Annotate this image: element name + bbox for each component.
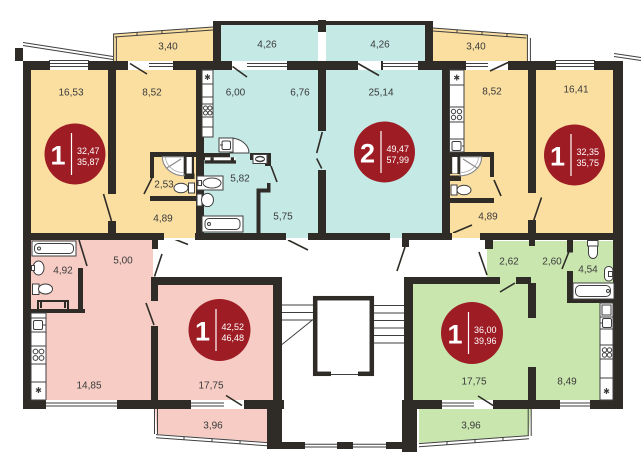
- svg-text:4,26: 4,26: [257, 40, 277, 51]
- svg-text:3,40: 3,40: [466, 42, 486, 53]
- svg-text:16,41: 16,41: [563, 85, 588, 96]
- svg-text:46,48: 46,48: [222, 333, 245, 343]
- svg-text:1: 1: [195, 317, 210, 347]
- svg-text:2,60: 2,60: [542, 257, 562, 268]
- svg-text:8,49: 8,49: [557, 377, 577, 388]
- svg-text:3,96: 3,96: [461, 421, 481, 432]
- svg-text:36,00: 36,00: [474, 325, 497, 335]
- svg-text:35,75: 35,75: [577, 158, 600, 168]
- svg-text:6,00: 6,00: [226, 88, 246, 99]
- svg-text:4,89: 4,89: [478, 212, 498, 223]
- svg-text:14,85: 14,85: [76, 381, 101, 392]
- svg-text:✱: ✱: [35, 386, 42, 395]
- svg-text:17,75: 17,75: [198, 381, 223, 392]
- svg-text:✱: ✱: [603, 387, 610, 396]
- svg-text:8,52: 8,52: [482, 87, 502, 98]
- svg-text:32,35: 32,35: [577, 147, 600, 157]
- svg-text:2,53: 2,53: [154, 180, 174, 191]
- svg-text:1: 1: [550, 142, 565, 172]
- svg-text:16,53: 16,53: [58, 88, 83, 99]
- svg-text:5,00: 5,00: [113, 256, 133, 267]
- svg-text:35,87: 35,87: [77, 157, 100, 167]
- svg-text:8,52: 8,52: [142, 88, 162, 99]
- svg-text:49,47: 49,47: [387, 144, 410, 154]
- svg-text:4,89: 4,89: [153, 214, 173, 225]
- svg-text:2,62: 2,62: [499, 257, 519, 268]
- svg-text:4,92: 4,92: [53, 266, 73, 277]
- svg-text:32,47: 32,47: [77, 146, 100, 156]
- svg-text:3,96: 3,96: [203, 421, 223, 432]
- svg-text:39,96: 39,96: [474, 336, 497, 346]
- svg-text:4,26: 4,26: [370, 40, 390, 51]
- svg-text:3,40: 3,40: [158, 42, 178, 53]
- svg-text:1: 1: [447, 320, 462, 350]
- svg-text:6,76: 6,76: [290, 88, 310, 99]
- svg-text:42,52: 42,52: [222, 322, 245, 332]
- svg-text:2: 2: [360, 139, 375, 169]
- svg-text:✱: ✱: [204, 73, 211, 82]
- svg-text:1: 1: [50, 141, 65, 171]
- svg-text:25,14: 25,14: [368, 88, 393, 99]
- svg-text:4,54: 4,54: [578, 265, 598, 276]
- svg-text:5,82: 5,82: [230, 174, 250, 185]
- svg-text:✱: ✱: [453, 74, 460, 83]
- svg-text:17,75: 17,75: [461, 377, 486, 388]
- svg-text:57,99: 57,99: [387, 155, 410, 165]
- svg-text:5,75: 5,75: [273, 212, 293, 223]
